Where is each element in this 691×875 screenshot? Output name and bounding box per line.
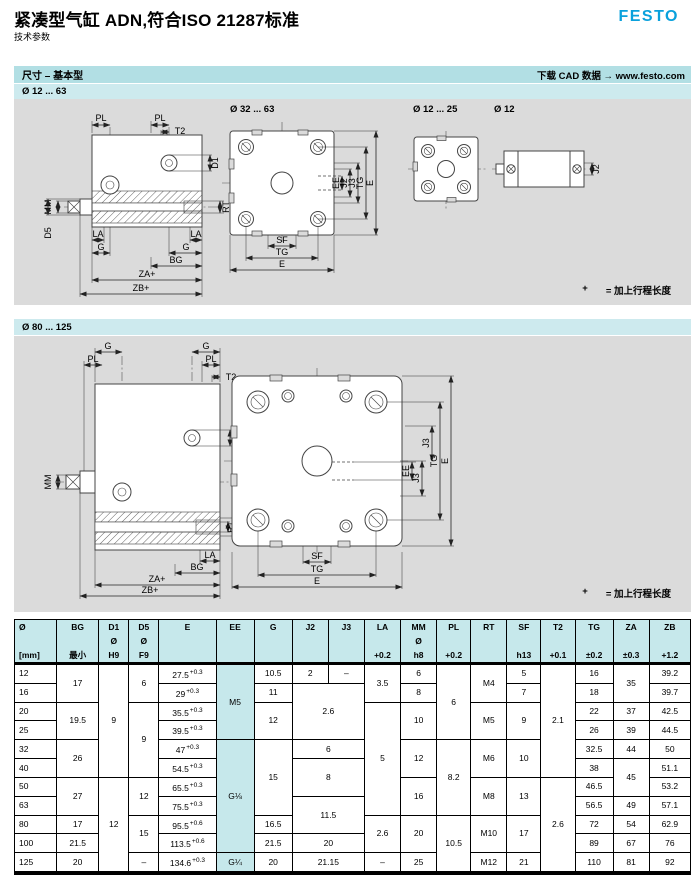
- drawing-front-view-12-25: [406, 127, 491, 222]
- table-cell: M4: [471, 664, 507, 703]
- column-header: J2: [292, 620, 328, 664]
- dimensions-table-wrap: Ø [mm]BG 最小D1ØH9D5ØF9E EE G J2 J3 LA +0.…: [14, 619, 691, 875]
- table-cell: 32.5: [575, 740, 613, 759]
- table-cell: 16: [15, 683, 57, 702]
- stroke-note: + = 加上行程长度: [582, 283, 671, 297]
- table-cell: M5: [216, 664, 254, 740]
- table-cell: 50: [649, 740, 690, 759]
- column-header: MMØh8: [401, 620, 437, 664]
- table-cell: 10: [401, 702, 437, 740]
- dim-label: SF: [276, 235, 288, 245]
- dim-label: ZB+: [133, 283, 150, 293]
- datasheet-page: 紧凑型气缸 ADN,符合ISO 21287标准 技术参数 FESTO 尺寸 – …: [0, 0, 691, 851]
- table-cell: 25: [401, 853, 437, 873]
- table-cell: 22: [575, 702, 613, 721]
- table-cell: 63: [15, 796, 57, 815]
- table-cell: 11.5: [292, 796, 364, 834]
- plus-symbol: +: [582, 283, 588, 297]
- dim-label: ZB+: [142, 585, 159, 595]
- table-cell: 76: [649, 834, 690, 853]
- table-cell: 5: [364, 702, 400, 815]
- section-header-bar: 尺寸 – 基本型 下载 CAD 数据 → www.festo.com: [14, 66, 691, 83]
- drawing-side-view-12: J2: [492, 135, 602, 205]
- table-cell: 100: [15, 834, 57, 853]
- drawing-front-view-80-125: EE J3 J3 TG E SF: [220, 366, 455, 601]
- column-header: RT: [471, 620, 507, 664]
- table-cell: 38: [575, 759, 613, 778]
- cylinder-body: [68, 135, 202, 227]
- dim-label: D5: [43, 227, 53, 239]
- table-cell: 44.5: [649, 721, 690, 740]
- range-label-12-63: Ø 12 ... 63: [14, 84, 691, 99]
- table-cell: 39.2: [649, 664, 690, 684]
- column-header: D1ØH9: [99, 620, 129, 664]
- dim-label: LA: [204, 550, 215, 560]
- dim-label: TG: [311, 564, 324, 574]
- table-cell: 2: [292, 664, 328, 684]
- dim-label: E: [440, 458, 450, 464]
- range-label-80-125: Ø 80 ... 125: [14, 319, 691, 335]
- table-cell: 17: [507, 815, 541, 853]
- table-cell: 18: [575, 683, 613, 702]
- dim-label: J2: [591, 164, 601, 174]
- table-cell: 39.7: [649, 683, 690, 702]
- dim-label: T2: [175, 126, 186, 136]
- table-cell: 26: [575, 721, 613, 740]
- table-cell: 54.5+0.3: [159, 759, 216, 778]
- table-cell: 67: [613, 834, 649, 853]
- column-header: E: [159, 620, 216, 664]
- table-cell: 57.1: [649, 796, 690, 815]
- table-cell: 40: [15, 759, 57, 778]
- dim-label: G: [97, 242, 104, 252]
- table-cell: 75.5+0.3: [159, 796, 216, 815]
- table-cell: 15: [254, 740, 292, 815]
- table-cell: M6: [471, 740, 507, 778]
- table-cell: 6: [292, 740, 364, 759]
- table-cell: 46.5: [575, 777, 613, 796]
- table-cell: 39.5+0.3: [159, 721, 216, 740]
- dimensions-table-body: 12179627.5+0.3M510.52–3.566M452.1163539.…: [15, 664, 691, 874]
- table-cell: 2.1: [541, 664, 575, 778]
- table-cell: 9: [99, 664, 129, 778]
- table-cell: –: [129, 853, 159, 873]
- table-cell: 35.5+0.3: [159, 702, 216, 721]
- note-text: = 加上行程长度: [606, 586, 671, 600]
- dim-label: TG: [355, 177, 365, 190]
- column-header: T2 +0.1: [541, 620, 575, 664]
- dim-label: BG: [169, 255, 182, 265]
- table-cell: 47+0.3: [159, 740, 216, 759]
- table-cell: 54: [613, 815, 649, 834]
- table-cell: 12: [15, 664, 57, 684]
- table-cell: 12: [401, 740, 437, 778]
- plus-symbol: +: [582, 586, 588, 600]
- dim-label: G: [182, 242, 189, 252]
- table-cell: 27.5+0.3: [159, 664, 216, 684]
- table-cell: 26: [57, 740, 99, 778]
- section-title: 尺寸 – 基本型: [22, 67, 83, 82]
- note-text: = 加上行程长度: [606, 283, 671, 297]
- table-cell: 11: [254, 683, 292, 702]
- dim-label: MM: [43, 475, 53, 490]
- dim-label: E: [314, 576, 320, 586]
- table-cell: 13: [507, 777, 541, 815]
- column-header: D5ØF9: [129, 620, 159, 664]
- table-cell: 95.5+0.6: [159, 815, 216, 834]
- table-cell: 6: [401, 664, 437, 684]
- table-cell: 10.5: [254, 664, 292, 684]
- column-header: LA +0.2: [364, 620, 400, 664]
- table-cell: 89: [575, 834, 613, 853]
- table-cell: 20: [292, 834, 364, 853]
- table-cell: –: [328, 664, 364, 684]
- caption-front-12-25: Ø 12 ... 25: [413, 104, 457, 115]
- table-header-row: Ø [mm]BG 最小D1ØH9D5ØF9E EE G J2 J3 LA +0.…: [15, 620, 691, 664]
- table-cell: 16: [575, 664, 613, 684]
- table-cell: 25: [15, 721, 57, 740]
- table-cell: 92: [649, 853, 690, 873]
- dim-label: LA: [190, 229, 201, 239]
- table-cell: M10: [471, 815, 507, 853]
- column-header: J3: [328, 620, 364, 664]
- table-cell: 56.5: [575, 796, 613, 815]
- table-cell: 45: [613, 759, 649, 797]
- table-cell: 20: [254, 853, 292, 873]
- cylinder-body: [66, 384, 220, 550]
- table-cell: 110: [575, 853, 613, 873]
- table-cell: 20: [15, 702, 57, 721]
- drawing-front-view-32-63: EE J2 J3 TG E SF: [222, 119, 387, 279]
- column-header: G: [254, 620, 292, 664]
- column-header: SF h13: [507, 620, 541, 664]
- table-cell: 44: [613, 740, 649, 759]
- table-cell: 125: [15, 853, 57, 873]
- caption-side-12: Ø 12: [494, 104, 515, 115]
- table-cell: 5: [507, 664, 541, 684]
- festo-logo: FESTO: [618, 8, 679, 26]
- table-cell: 17: [57, 815, 99, 834]
- table-cell: 9: [129, 702, 159, 777]
- table-cell: G⅛: [216, 740, 254, 853]
- dim-label: G: [202, 342, 209, 351]
- table-cell: 21.5: [254, 834, 292, 853]
- dim-label: BG: [190, 562, 203, 572]
- dim-label: PL: [95, 113, 106, 123]
- table-cell: 7: [507, 683, 541, 702]
- column-header: BG 最小: [57, 620, 99, 664]
- dim-label: J3: [421, 438, 431, 448]
- table-cell: 134.6+0.3: [159, 853, 216, 873]
- dim-label: PL: [154, 113, 165, 123]
- column-header: PL +0.2: [437, 620, 471, 664]
- table-cell: 80: [15, 815, 57, 834]
- dim-label: LA: [92, 229, 103, 239]
- page-title: 紧凑型气缸 ADN,符合ISO 21287标准: [14, 6, 299, 31]
- table-cell: 20: [57, 853, 99, 873]
- table-cell: 2.6: [292, 683, 364, 739]
- dimensions-table: Ø [mm]BG 最小D1ØH9D5ØF9E EE G J2 J3 LA +0.…: [14, 619, 691, 875]
- table-cell: 20: [401, 815, 437, 853]
- dim-label: G: [104, 342, 111, 351]
- table-cell: 65.5+0.3: [159, 777, 216, 796]
- table-cell: 21: [507, 853, 541, 873]
- column-header: TG ±0.2: [575, 620, 613, 664]
- table-cell: 12: [254, 702, 292, 740]
- column-header: Ø [mm]: [15, 620, 57, 664]
- dim-label: SF: [311, 551, 323, 561]
- column-header: ZA ±0.3: [613, 620, 649, 664]
- table-cell: 21.5: [57, 834, 99, 853]
- table-cell: M5: [471, 702, 507, 740]
- table-cell: 8: [292, 759, 364, 797]
- table-cell: 35: [613, 664, 649, 703]
- table-cell: 17: [57, 664, 99, 703]
- table-row: 12179627.5+0.3M510.52–3.566M452.1163539.…: [15, 664, 691, 684]
- table-cell: 2.6: [541, 777, 575, 873]
- table-cell: 39: [613, 721, 649, 740]
- table-cell: 21.15: [292, 853, 364, 873]
- table-cell: 16.5: [254, 815, 292, 834]
- table-cell: 72: [575, 815, 613, 834]
- dim-label: E: [279, 259, 285, 269]
- table-cell: 2.6: [364, 815, 400, 853]
- column-header: EE: [216, 620, 254, 664]
- table-cell: 42.5: [649, 702, 690, 721]
- dimension-lines: J2: [584, 163, 601, 175]
- table-cell: 8: [401, 683, 437, 702]
- dim-label: ZA+: [139, 269, 156, 279]
- dim-label: D1: [210, 157, 220, 169]
- dim-label: ZA+: [149, 574, 166, 584]
- table-cell: 15: [129, 815, 159, 853]
- table-cell: 10: [507, 740, 541, 778]
- table-cell: G¼: [216, 853, 254, 873]
- table-cell: 16: [401, 777, 437, 815]
- table-cell: 3.5: [364, 664, 400, 703]
- table-cell: 6: [129, 664, 159, 703]
- table-cell: 32: [15, 740, 57, 759]
- table-cell: 53.2: [649, 777, 690, 796]
- table-cell: 81: [613, 853, 649, 873]
- table-cell: 29+0.3: [159, 683, 216, 702]
- table-cell: 62.9: [649, 815, 690, 834]
- column-header: ZB +1.2: [649, 620, 690, 664]
- table-cell: 27: [57, 777, 99, 815]
- dim-label: TG: [429, 455, 439, 468]
- table-cell: 51.1: [649, 759, 690, 778]
- table-cell: 10.5: [437, 815, 471, 873]
- cad-download-link[interactable]: 下载 CAD 数据 → www.festo.com: [537, 68, 685, 82]
- page-subtitle: 技术参数: [14, 30, 50, 43]
- table-cell: M12: [471, 853, 507, 873]
- dim-label: E: [365, 180, 375, 186]
- dim-label: J3: [411, 473, 421, 483]
- dim-label: PL: [87, 354, 98, 364]
- table-cell: 12: [99, 777, 129, 873]
- stroke-note: + = 加上行程长度: [582, 586, 671, 600]
- table-cell: 19.5: [57, 702, 99, 740]
- dim-label: PL: [205, 354, 216, 364]
- table-cell: 113.5+0.6: [159, 834, 216, 853]
- table-cell: 8.2: [437, 740, 471, 815]
- table-cell: 6: [437, 664, 471, 740]
- table-cell: 37: [613, 702, 649, 721]
- table-cell: –: [364, 853, 400, 873]
- drawing-area-80-125: G G PL PL T2 MM D1: [14, 336, 691, 612]
- table-cell: 12: [129, 777, 159, 815]
- table-cell: 50: [15, 777, 57, 796]
- table-cell: 49: [613, 796, 649, 815]
- dim-label: EE: [401, 465, 411, 477]
- dim-label: TG: [276, 247, 289, 257]
- drawing-area-12-63: Ø 32 ... 63 Ø 12 ... 25 Ø 12: [14, 99, 691, 305]
- table-cell: 9: [507, 702, 541, 740]
- table-cell: M8: [471, 777, 507, 815]
